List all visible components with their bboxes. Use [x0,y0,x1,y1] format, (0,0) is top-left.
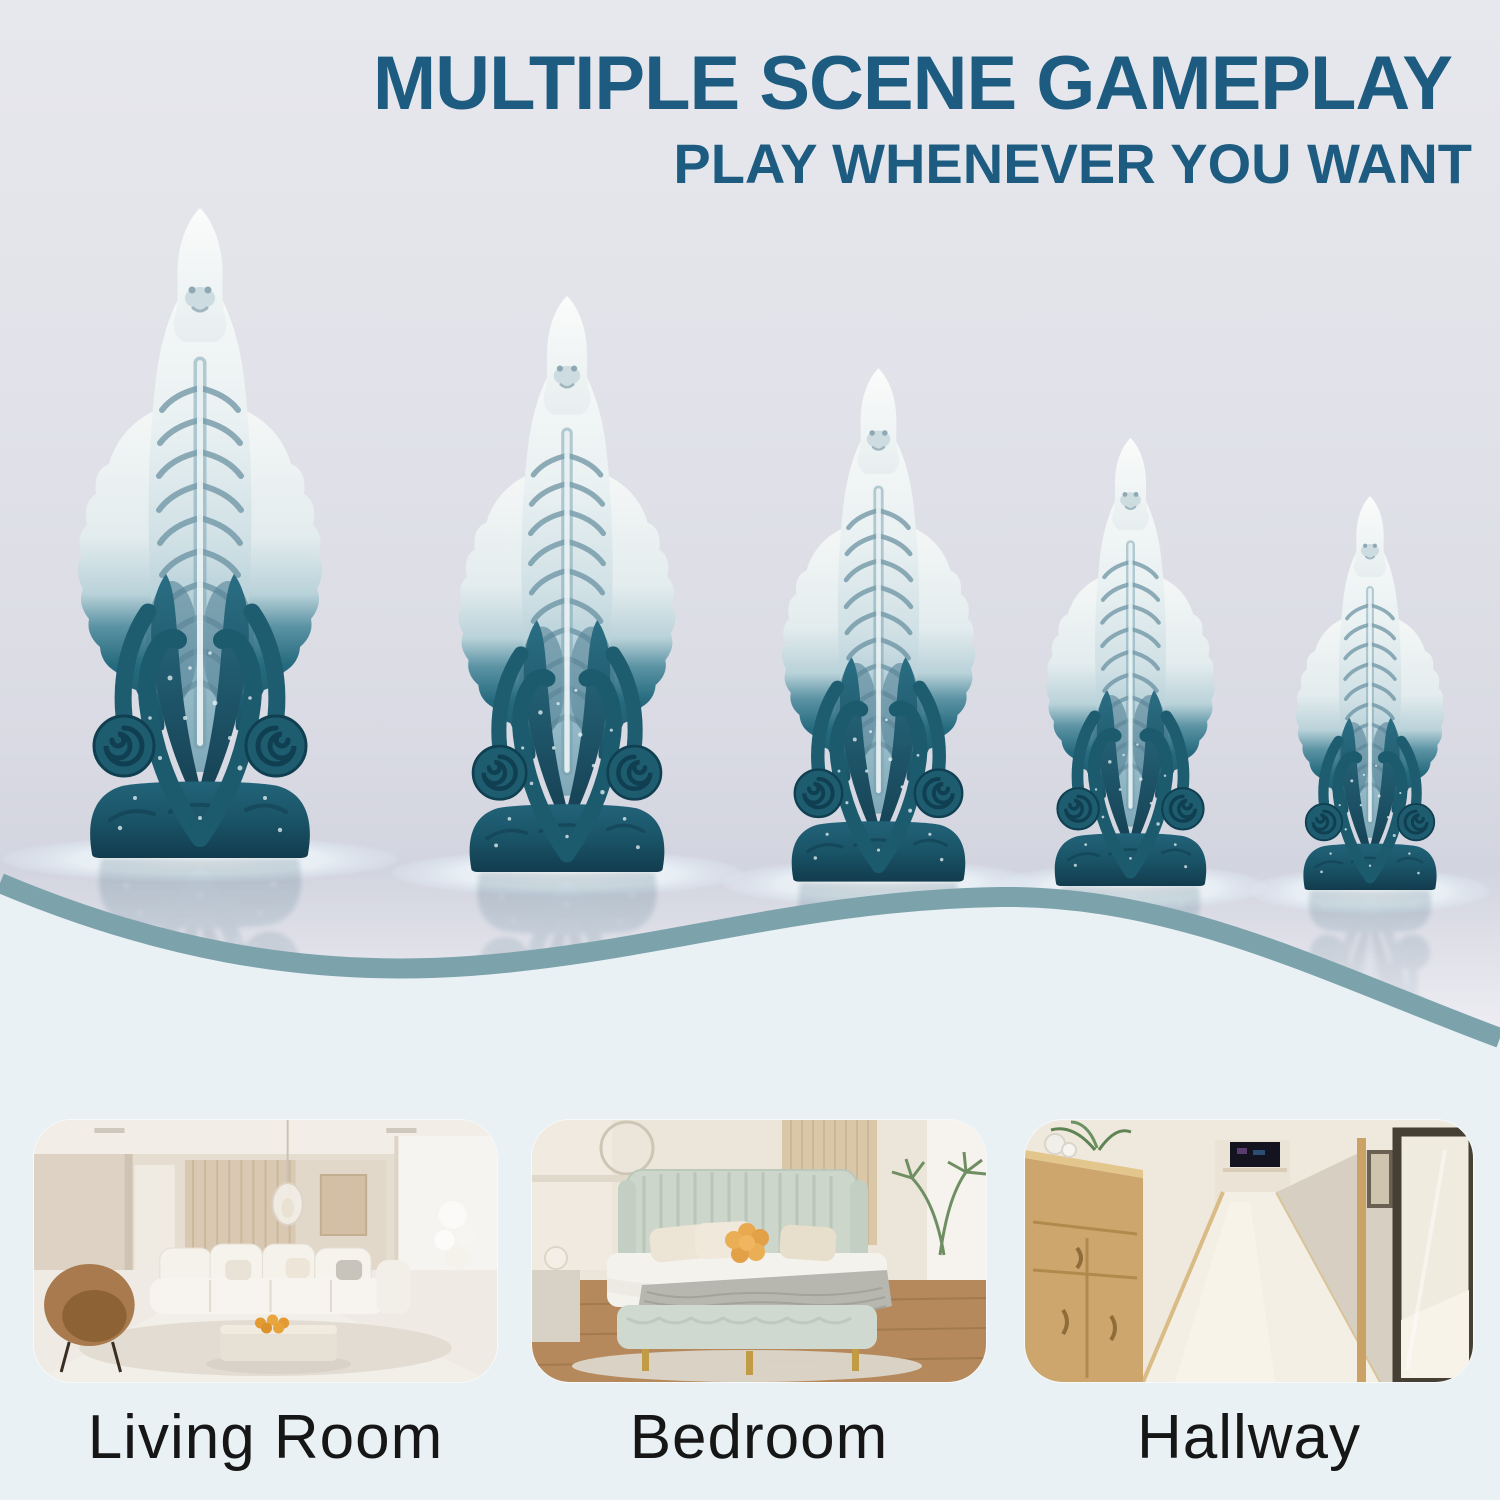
figurine-illustration [50,198,350,858]
figurine-illustration [434,287,700,872]
product-figurine-size-3 [760,360,997,882]
product-marketing-image: MULTIPLE SCENE GAMEPLAY PLAY WHENEVER YO… [0,0,1500,1500]
scene-label-bedroom: Bedroom [532,1402,986,1473]
figurine-illustration [1279,490,1461,890]
bed [607,1170,892,1375]
figurine-illustration [1027,431,1234,886]
product-figurine-size-1 [50,198,350,858]
living-room-photo [34,1120,497,1382]
sideboard-cabinet [1025,1150,1143,1382]
hallway-photo [1025,1120,1473,1382]
scene-label-living-room: Living Room [34,1402,497,1473]
wall-art [1369,1152,1391,1206]
page-subtitle: PLAY WHENEVER YOU WANT [673,136,1472,192]
scene-label-hallway: Hallway [1025,1402,1473,1473]
scene-card-bedroom [532,1120,986,1382]
scene-card-hallway [1025,1120,1473,1382]
product-figurine-size-4 [1027,431,1234,886]
figurine-illustration [760,360,997,882]
product-figurine-size-5 [1279,490,1461,890]
page-title: MULTIPLE SCENE GAMEPLAY [373,46,1452,122]
bedroom-photo [532,1120,986,1382]
mirror [1397,1132,1473,1382]
product-figurine-size-2 [434,287,700,872]
tv-screen [1230,1142,1280,1167]
scene-card-living-room [34,1120,497,1382]
